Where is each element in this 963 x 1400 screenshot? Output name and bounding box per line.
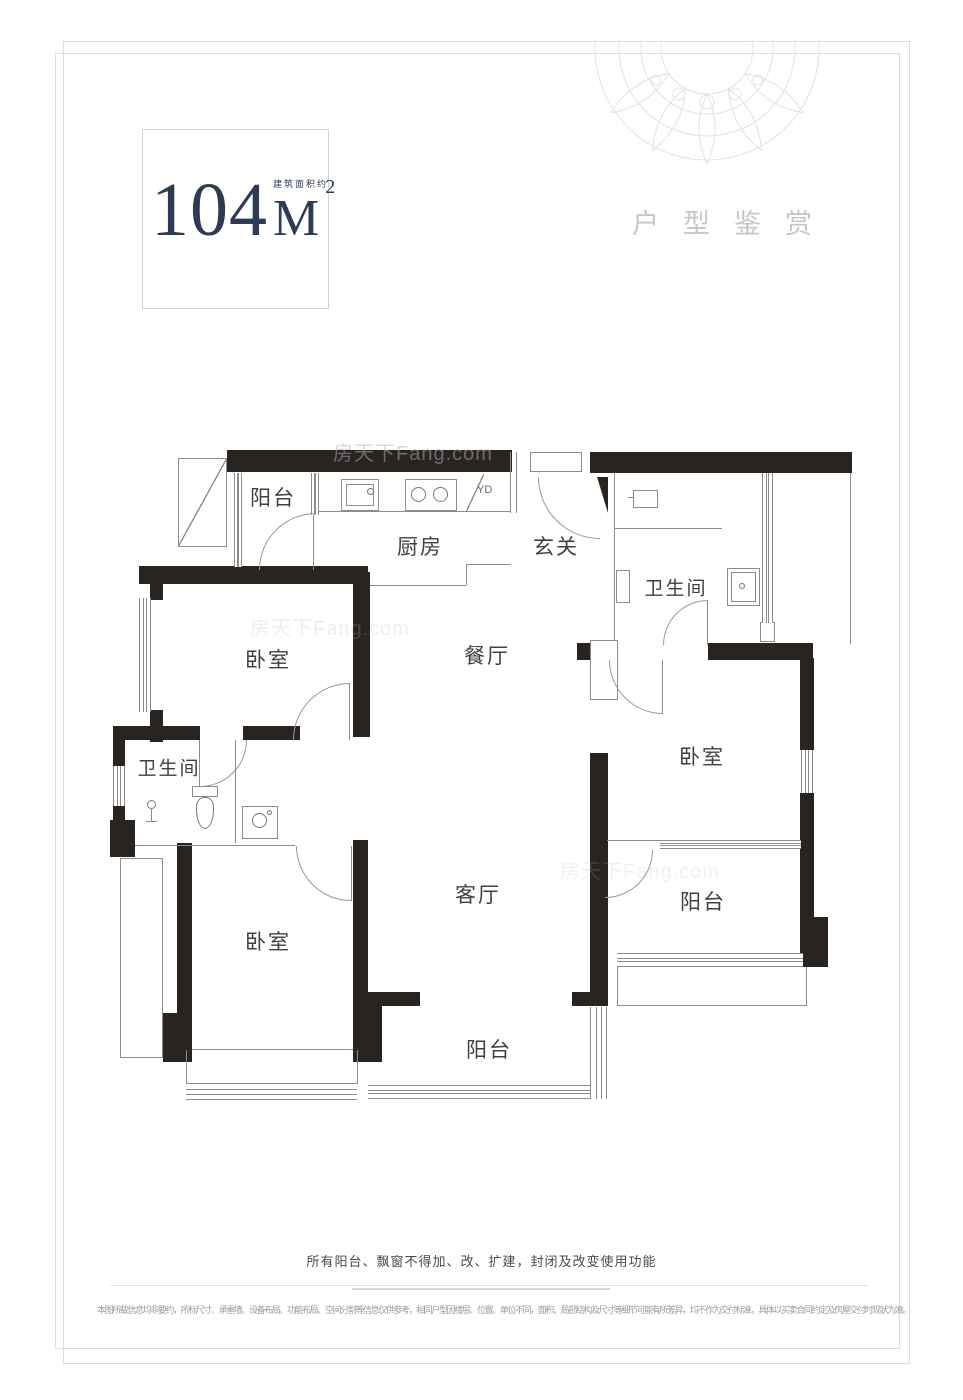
wall bbox=[708, 643, 813, 660]
room-label-bedroom-right: 卧室 bbox=[679, 741, 725, 771]
room-label-entry: 玄关 bbox=[533, 531, 579, 561]
wall bbox=[590, 452, 852, 473]
room-label-bedroom-bottom-left: 卧室 bbox=[245, 926, 291, 956]
wall bbox=[353, 572, 370, 737]
wall bbox=[113, 740, 125, 766]
room-label-bathroom-right: 卫生间 bbox=[644, 574, 707, 601]
balcony-window bbox=[590, 1007, 607, 1099]
room-label-balcony-bottom: 阳台 bbox=[466, 1034, 512, 1064]
window bbox=[801, 750, 813, 793]
balcony-notice: 所有阳台、飘窗不得加、改、扩建，封闭及改变使用功能 bbox=[0, 1251, 963, 1270]
toilet-icon bbox=[196, 797, 214, 829]
stove-burner-icon bbox=[411, 487, 426, 502]
wall bbox=[368, 992, 420, 1006]
wall bbox=[243, 726, 300, 740]
door-arc bbox=[609, 660, 663, 714]
washbasin-icon bbox=[628, 497, 634, 498]
stove-burner-icon bbox=[433, 487, 448, 502]
door-arc bbox=[663, 600, 708, 645]
door-arc bbox=[296, 846, 351, 901]
window bbox=[113, 766, 125, 806]
washbasin-icon bbox=[633, 490, 658, 508]
watermark: 房天下Fang.com bbox=[333, 437, 493, 466]
flue-label: YD bbox=[477, 484, 492, 496]
pillar bbox=[760, 622, 775, 642]
wall-line bbox=[617, 1005, 807, 1006]
watermark: 房天下Fang.com bbox=[560, 855, 720, 884]
wall-line bbox=[370, 585, 466, 586]
wall-line bbox=[135, 845, 295, 846]
disclaimer-text: 本图所载信息均非要约，所标尺寸、承重墙、设备布局、功能布局、空间分割等信息仅供参… bbox=[97, 1303, 887, 1316]
sink-faucet-icon bbox=[267, 810, 272, 815]
door-arc bbox=[259, 513, 316, 570]
wall bbox=[110, 820, 135, 857]
entry-recess bbox=[530, 452, 582, 472]
wall bbox=[800, 793, 814, 917]
wall-line bbox=[466, 564, 467, 585]
floorplan: YD阳台厨房玄关卫生间卧室餐厅卧室卫生间客厅阳台卧室阳台房天下Fang.com房… bbox=[0, 0, 963, 1400]
side-ledge bbox=[120, 858, 163, 1058]
wall-line bbox=[614, 473, 615, 643]
wall-line bbox=[186, 1050, 187, 1084]
room-label-bedroom-top-left: 卧室 bbox=[245, 644, 291, 674]
wall-line bbox=[516, 452, 517, 513]
room-label-balcony-top-left: 阳台 bbox=[250, 482, 296, 512]
wall-line bbox=[617, 967, 618, 1006]
footer-divider bbox=[110, 1285, 868, 1286]
shower-icon bbox=[151, 808, 152, 822]
bath-cabinet-icon bbox=[616, 570, 630, 603]
wall bbox=[150, 584, 163, 600]
wall bbox=[800, 917, 828, 967]
wall bbox=[353, 840, 368, 997]
wall-line bbox=[357, 1050, 358, 1084]
wall bbox=[113, 726, 200, 740]
toilet-tank-icon bbox=[192, 786, 218, 797]
page: 104 建筑面积约 M 2 户型鉴赏 YD阳台厨房玄关卫生间卧室餐厅卧室卫生间客… bbox=[0, 0, 963, 1400]
wardrobe-icon bbox=[178, 458, 227, 547]
shower-icon bbox=[146, 821, 157, 822]
wall-line bbox=[806, 967, 807, 1006]
bay-window bbox=[186, 1083, 357, 1100]
door-arc bbox=[293, 683, 350, 740]
wall bbox=[163, 1013, 192, 1062]
shaft-window bbox=[762, 473, 773, 623]
wall bbox=[139, 566, 368, 584]
wall-line bbox=[607, 840, 662, 841]
door-leaf bbox=[351, 846, 352, 901]
wall bbox=[800, 658, 814, 750]
wall-line bbox=[466, 564, 511, 565]
window bbox=[139, 598, 151, 712]
wall-line bbox=[615, 528, 722, 529]
sink-icon bbox=[252, 813, 267, 828]
kitchen-faucet-icon bbox=[367, 488, 374, 495]
wall-line bbox=[192, 1049, 353, 1050]
balcony-window bbox=[617, 953, 803, 967]
balcony-rail bbox=[660, 840, 801, 849]
wall-line bbox=[850, 473, 851, 644]
balcony-mullion bbox=[311, 473, 319, 515]
room-label-bathroom-left: 卫生间 bbox=[137, 754, 200, 781]
door-arc bbox=[200, 740, 247, 787]
footer-divider-segment bbox=[352, 1288, 610, 1290]
basin-faucet-icon bbox=[739, 583, 745, 589]
watermark: 房天下Fang.com bbox=[250, 612, 410, 641]
balcony-mullion bbox=[234, 473, 242, 567]
balcony-window bbox=[368, 1085, 607, 1099]
door-arc bbox=[538, 477, 600, 539]
room-label-kitchen: 厨房 bbox=[397, 531, 443, 561]
wall bbox=[177, 843, 192, 1013]
wall-line bbox=[510, 452, 511, 513]
room-label-balcony-right: 阳台 bbox=[680, 886, 726, 916]
room-label-dining-room: 餐厅 bbox=[464, 640, 510, 670]
room-label-living-room: 客厅 bbox=[455, 879, 501, 909]
